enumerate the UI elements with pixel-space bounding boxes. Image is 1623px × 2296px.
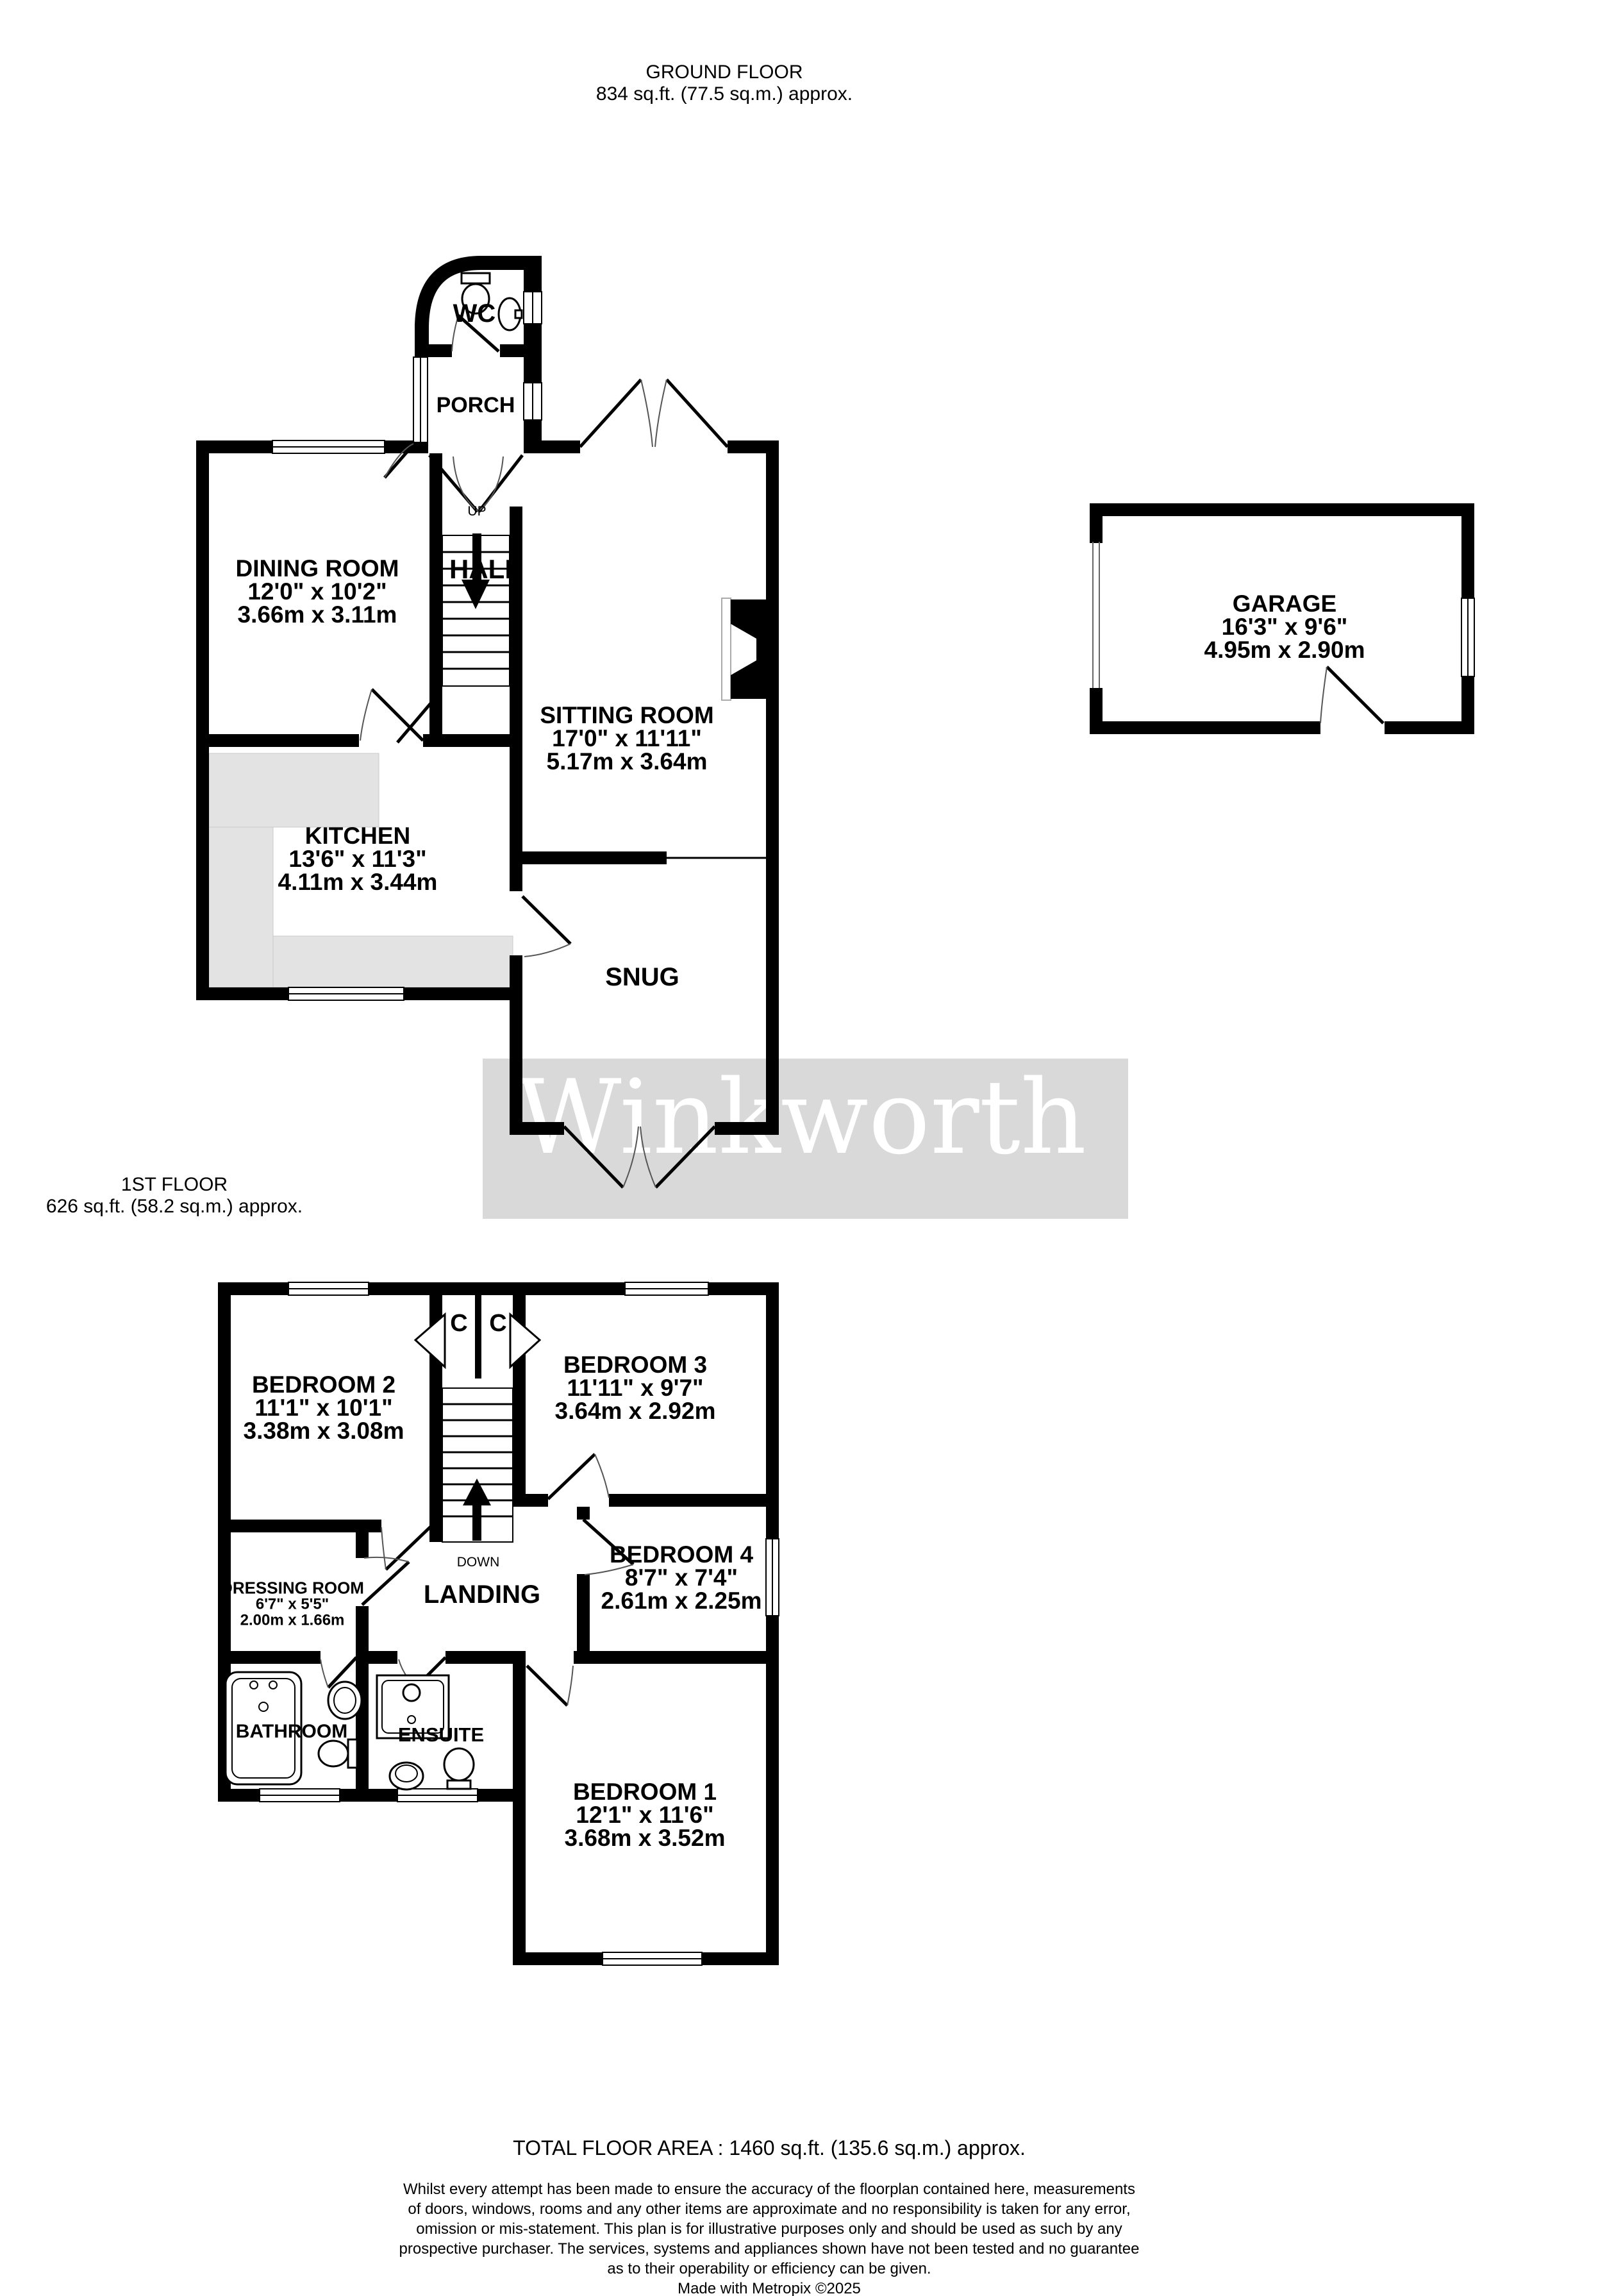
bathroom-sink-symbol: [328, 1682, 362, 1719]
room-dims-metric: 3.68m x 3.52m: [565, 1827, 726, 1850]
ensuite-toilet-symbol: [444, 1748, 474, 1789]
room-dims-imperial: 8'7" x 7'4": [601, 1566, 762, 1589]
bedroom1-label: BEDROOM 1 12'1" x 11'6" 3.68m x 3.52m: [565, 1781, 726, 1850]
room-dims-metric: 3.64m x 2.92m: [555, 1400, 716, 1423]
disclaimer-line: of doors, windows, rooms and any other i…: [399, 2199, 1140, 2219]
wc-label: WC: [453, 302, 496, 325]
metropix-credit: Made with Metropix ©2025: [399, 2279, 1140, 2296]
room-name: BEDROOM 2: [244, 1373, 404, 1396]
bedroom4-label: BEDROOM 4 8'7" x 7'4" 2.61m x 2.25m: [601, 1543, 762, 1613]
kitchen-label: KITCHEN 13'6" x 11'3" 4.11m x 3.44m: [278, 825, 438, 894]
sitting-room-label: SITTING ROOM 17'0" x 11'11" 5.17m x 3.64…: [540, 704, 713, 773]
room-dims-metric: 5.17m x 3.64m: [540, 750, 713, 773]
disclaimer-line: omission or mis-statement. This plan is …: [399, 2219, 1140, 2239]
bathroom-label: BATHROOM: [236, 1720, 347, 1743]
cupboard-left-label: C: [450, 1312, 467, 1335]
floorplan-page: Winkworth: [0, 0, 1623, 2296]
room-dims-imperial: 17'0" x 11'11": [540, 727, 713, 750]
garage-label: GARAGE 16'3" x 9'6" 4.95m x 2.90m: [1204, 592, 1365, 662]
room-name: BEDROOM 1: [565, 1781, 726, 1804]
first-floor-title: 1ST FLOOR: [46, 1174, 303, 1196]
room-name: DINING ROOM: [236, 557, 399, 580]
watermark-text: Winkworth: [516, 1057, 1086, 1177]
cupboard-right-label: C: [489, 1312, 506, 1335]
wc-sink-symbol: [499, 298, 522, 330]
room-name: BEDROOM 4: [601, 1543, 762, 1566]
bedroom2-label: BEDROOM 2 11'1" x 10'1" 3.38m x 3.08m: [244, 1373, 404, 1443]
first-floor-area: 626 sq.ft. (58.2 sq.m.) approx.: [46, 1196, 303, 1218]
room-dims-metric: 4.11m x 3.44m: [278, 871, 438, 894]
landing-label: LANDING: [424, 1583, 540, 1606]
room-name: SITTING ROOM: [540, 704, 713, 727]
dining-room-label: DINING ROOM 12'0" x 10'2" 3.66m x 3.11m: [236, 557, 399, 626]
ensuite-label: ENSUITE: [398, 1723, 484, 1747]
hall-label: HALL: [449, 558, 521, 581]
room-dims-imperial: 16'3" x 9'6": [1204, 616, 1365, 639]
room-dims-imperial: 12'1" x 11'6": [565, 1804, 726, 1827]
room-dims-imperial: 12'0" x 10'2": [236, 580, 399, 603]
room-name: BEDROOM 3: [555, 1353, 716, 1377]
total-floor-area: TOTAL FLOOR AREA : 1460 sq.ft. (135.6 sq…: [513, 2136, 1026, 2159]
ground-floor-title: GROUND FLOOR: [596, 62, 853, 83]
stairs-up-label: UP: [467, 500, 486, 523]
ground-floor-header: GROUND FLOOR 834 sq.ft. (77.5 sq.m.) app…: [596, 62, 853, 105]
first-floor-header: 1ST FLOOR 626 sq.ft. (58.2 sq.m.) approx…: [46, 1174, 303, 1218]
bathroom-toilet-symbol: [319, 1739, 357, 1768]
floorplan-drawing: Winkworth: [0, 0, 1623, 2296]
room-dims-imperial: 6'7" x 5'5": [221, 1596, 364, 1613]
disclaimer-line: prospective purchaser. The services, sys…: [399, 2239, 1140, 2259]
room-dims-metric: 3.66m x 3.11m: [236, 603, 399, 626]
room-dims-imperial: 11'11" x 9'7": [555, 1377, 716, 1400]
chimney-breast: [722, 598, 766, 700]
room-name: GARAGE: [1204, 592, 1365, 616]
room-dims-metric: 2.61m x 2.25m: [601, 1589, 762, 1613]
porch-label: PORCH: [437, 394, 515, 417]
disclaimer-line: as to their operability or efficiency ca…: [399, 2259, 1140, 2279]
ensuite-sink-symbol: [390, 1763, 423, 1789]
room-dims-metric: 3.38m x 3.08m: [244, 1420, 404, 1443]
ground-floor-area: 834 sq.ft. (77.5 sq.m.) approx.: [596, 83, 853, 105]
disclaimer: Whilst every attempt has been made to en…: [399, 2179, 1140, 2296]
room-dims-metric: 4.95m x 2.90m: [1204, 639, 1365, 662]
stairs-arrow-shaft: [472, 1504, 481, 1541]
dressing-room-label: DRESSING ROOM 6'7" x 5'5" 2.00m x 1.66m: [221, 1580, 364, 1629]
room-name: DRESSING ROOM: [221, 1580, 364, 1596]
room-name: KITCHEN: [278, 825, 438, 848]
room-dims-metric: 2.00m x 1.66m: [221, 1613, 364, 1629]
room-dims-imperial: 13'6" x 11'3": [278, 848, 438, 871]
garage-door: [1093, 542, 1099, 688]
room-dims-imperial: 11'1" x 10'1": [244, 1396, 404, 1420]
snug-label: SNUG: [605, 966, 679, 989]
disclaimer-line: Whilst every attempt has been made to en…: [399, 2179, 1140, 2199]
bedroom3-label: BEDROOM 3 11'11" x 9'7" 3.64m x 2.92m: [555, 1353, 716, 1423]
stairs-first: [442, 1388, 513, 1542]
stairs-down-label: DOWN: [457, 1551, 500, 1574]
